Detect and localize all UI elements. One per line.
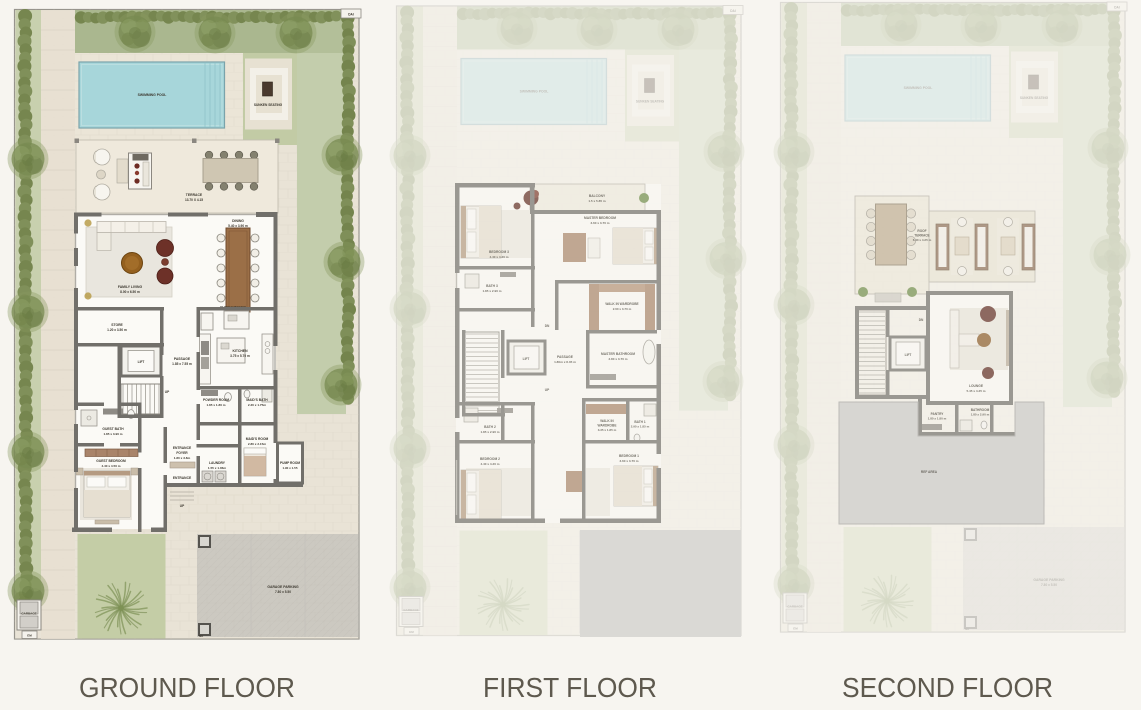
svg-text:5.40 x 3.90 m: 5.40 x 3.90 m: [228, 224, 248, 228]
svg-text:1.20 x 3.50 m: 1.20 x 3.50 m: [107, 328, 127, 332]
svg-text:DN: DN: [545, 324, 550, 328]
svg-text:ROOF: ROOF: [917, 229, 926, 233]
svg-text:1.80m x 8.35 m: 1.80m x 8.35 m: [554, 360, 576, 364]
svg-text:MAID'S BATH: MAID'S BATH: [246, 398, 268, 402]
svg-text:PUMP ROOM: PUMP ROOM: [280, 461, 300, 465]
svg-text:BEDROOM 3: BEDROOM 3: [489, 250, 509, 254]
svg-text:WARDROBE: WARDROBE: [598, 424, 617, 428]
svg-text:PASSAGE: PASSAGE: [174, 357, 191, 361]
svg-text:BEDROOM 1: BEDROOM 1: [619, 454, 639, 458]
svg-text:1.85 x 3.90 m: 1.85 x 3.90 m: [103, 432, 122, 436]
svg-text:1.5 x 5.85 m: 1.5 x 5.85 m: [588, 199, 606, 203]
svg-text:8.00 x 6.50 m: 8.00 x 6.50 m: [120, 290, 140, 294]
svg-text:13.70 X 4.15: 13.70 X 4.15: [185, 198, 203, 202]
svg-text:LAUNDRY: LAUNDRY: [209, 461, 226, 465]
svg-text:6.40 x 4.25 m: 6.40 x 4.25 m: [913, 238, 932, 242]
svg-text:BATH 3: BATH 3: [486, 284, 498, 288]
svg-text:GROUND FLOOR: GROUND FLOOR: [79, 672, 295, 703]
svg-text:WALK IN WARDROBE: WALK IN WARDROBE: [605, 302, 638, 306]
svg-text:1.85 x 7.55 m: 1.85 x 7.55 m: [172, 362, 192, 366]
svg-text:LIFT: LIFT: [138, 360, 145, 364]
svg-text:ENTRANCE: ENTRANCE: [173, 476, 192, 480]
svg-text:FIRST FLOOR: FIRST FLOOR: [483, 672, 657, 703]
svg-text:WALK IN: WALK IN: [600, 419, 614, 423]
svg-text:1.55 x 1.06m: 1.55 x 1.06m: [208, 466, 226, 470]
svg-text:REF AREA: REF AREA: [921, 470, 938, 474]
svg-text:2.60 x 3.70 m: 2.60 x 3.70 m: [613, 307, 632, 311]
svg-text:KITCHEN: KITCHEN: [232, 349, 248, 353]
svg-text:4.40 x 4.20 m: 4.40 x 4.20 m: [489, 255, 508, 259]
svg-text:PASSAGE: PASSAGE: [557, 355, 574, 359]
svg-text:MASTER BATHROOM: MASTER BATHROOM: [601, 352, 635, 356]
svg-text:1.85 x 2.90 m: 1.85 x 2.90 m: [482, 289, 501, 293]
svg-text:MAID'S ROOM: MAID'S ROOM: [246, 437, 269, 441]
svg-text:TERRACE: TERRACE: [914, 234, 929, 238]
svg-text:SECOND FLOOR: SECOND FLOOR: [842, 672, 1053, 703]
svg-text:LOUNGE: LOUNGE: [969, 384, 984, 388]
svg-text:LIFT: LIFT: [905, 353, 912, 357]
svg-text:2.90 x 1.85 m: 2.90 x 1.85 m: [631, 425, 650, 429]
svg-text:LIFT: LIFT: [523, 357, 530, 361]
svg-text:1.85 x 2.90 m: 1.85 x 2.90 m: [480, 430, 499, 434]
svg-text:2.80 x 3.70 m: 2.80 x 3.70 m: [608, 357, 627, 361]
svg-text:BALCONY: BALCONY: [589, 194, 606, 198]
svg-text:1.90 x 1.55: 1.90 x 1.55: [282, 466, 297, 470]
svg-text:5.45 x 4.25 m: 5.45 x 4.25 m: [966, 389, 985, 393]
svg-text:ENTRANCE: ENTRANCE: [173, 446, 192, 450]
svg-text:3.75 x 5.70 m: 3.75 x 5.70 m: [230, 354, 250, 358]
svg-text:TERRACE: TERRACE: [186, 193, 203, 197]
svg-text:BATH 2: BATH 2: [484, 425, 496, 429]
svg-text:1.80 x 1.80 m: 1.80 x 1.80 m: [928, 417, 947, 421]
svg-text:BEDROOM 2: BEDROOM 2: [480, 457, 500, 461]
svg-text:POWDER ROOM: POWDER ROOM: [203, 398, 229, 402]
svg-text:4.40 x 4.20 m: 4.40 x 4.20 m: [480, 462, 499, 466]
svg-text:FAMILY LIVING: FAMILY LIVING: [118, 285, 143, 289]
svg-text:GUEST BEDROOM: GUEST BEDROOM: [96, 459, 126, 463]
svg-text:PANTRY: PANTRY: [931, 412, 945, 416]
svg-text:GUEST BATH: GUEST BATH: [102, 427, 124, 431]
svg-text:2.80 x 2.15m: 2.80 x 2.15m: [248, 442, 266, 446]
svg-text:1.80 x 3.8m: 1.80 x 3.8m: [174, 456, 191, 460]
svg-text:MASTER BEDROOM: MASTER BEDROOM: [584, 216, 616, 220]
svg-text:4.40 x 4.50 m: 4.40 x 4.50 m: [101, 464, 120, 468]
svg-text:3.60 x 3.70 m: 3.60 x 3.70 m: [590, 221, 609, 225]
svg-text:1.80 x 2.90 m: 1.80 x 2.90 m: [971, 413, 990, 417]
svg-text:BATHROOM: BATHROOM: [971, 408, 990, 412]
svg-text:DINING: DINING: [232, 219, 244, 223]
svg-text:BATH 1: BATH 1: [634, 420, 646, 424]
svg-text:DN: DN: [919, 318, 924, 322]
svg-text:FOYER: FOYER: [176, 451, 188, 455]
svg-text:3.35 x 1.85 m: 3.35 x 1.85 m: [598, 428, 617, 432]
svg-text:STORE: STORE: [111, 323, 123, 327]
svg-text:1.85 x 1.80 m: 1.85 x 1.80 m: [206, 403, 225, 407]
svg-text:2.20 x 1.75m: 2.20 x 1.75m: [248, 403, 266, 407]
svg-text:3.60 x 3.70 m: 3.60 x 3.70 m: [619, 459, 638, 463]
